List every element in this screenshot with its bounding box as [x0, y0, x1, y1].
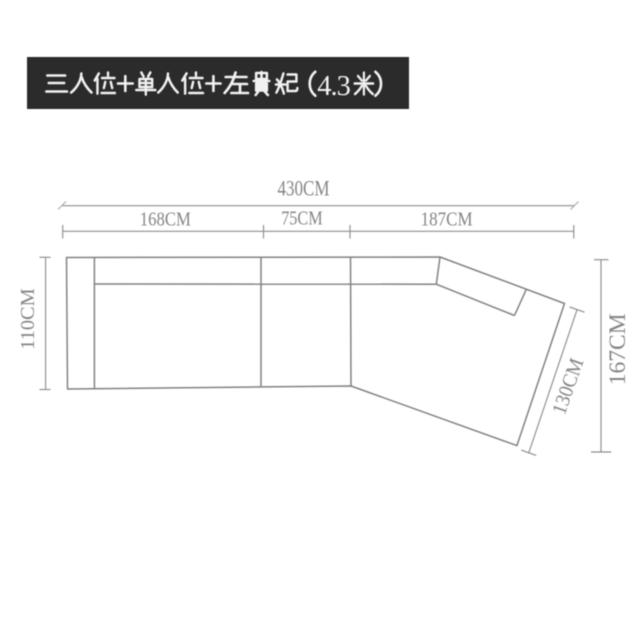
svg-text:167CM: 167CM [605, 313, 630, 385]
svg-text:75CM: 75CM [281, 208, 323, 230]
svg-text:430CM: 430CM [278, 176, 330, 201]
svg-text:130CM: 130CM [548, 356, 588, 418]
svg-text:4.3: 4.3 [317, 71, 350, 102]
svg-text:110CM: 110CM [17, 288, 39, 350]
svg-text:187CM: 187CM [421, 209, 473, 231]
svg-text:168CM: 168CM [140, 209, 191, 231]
